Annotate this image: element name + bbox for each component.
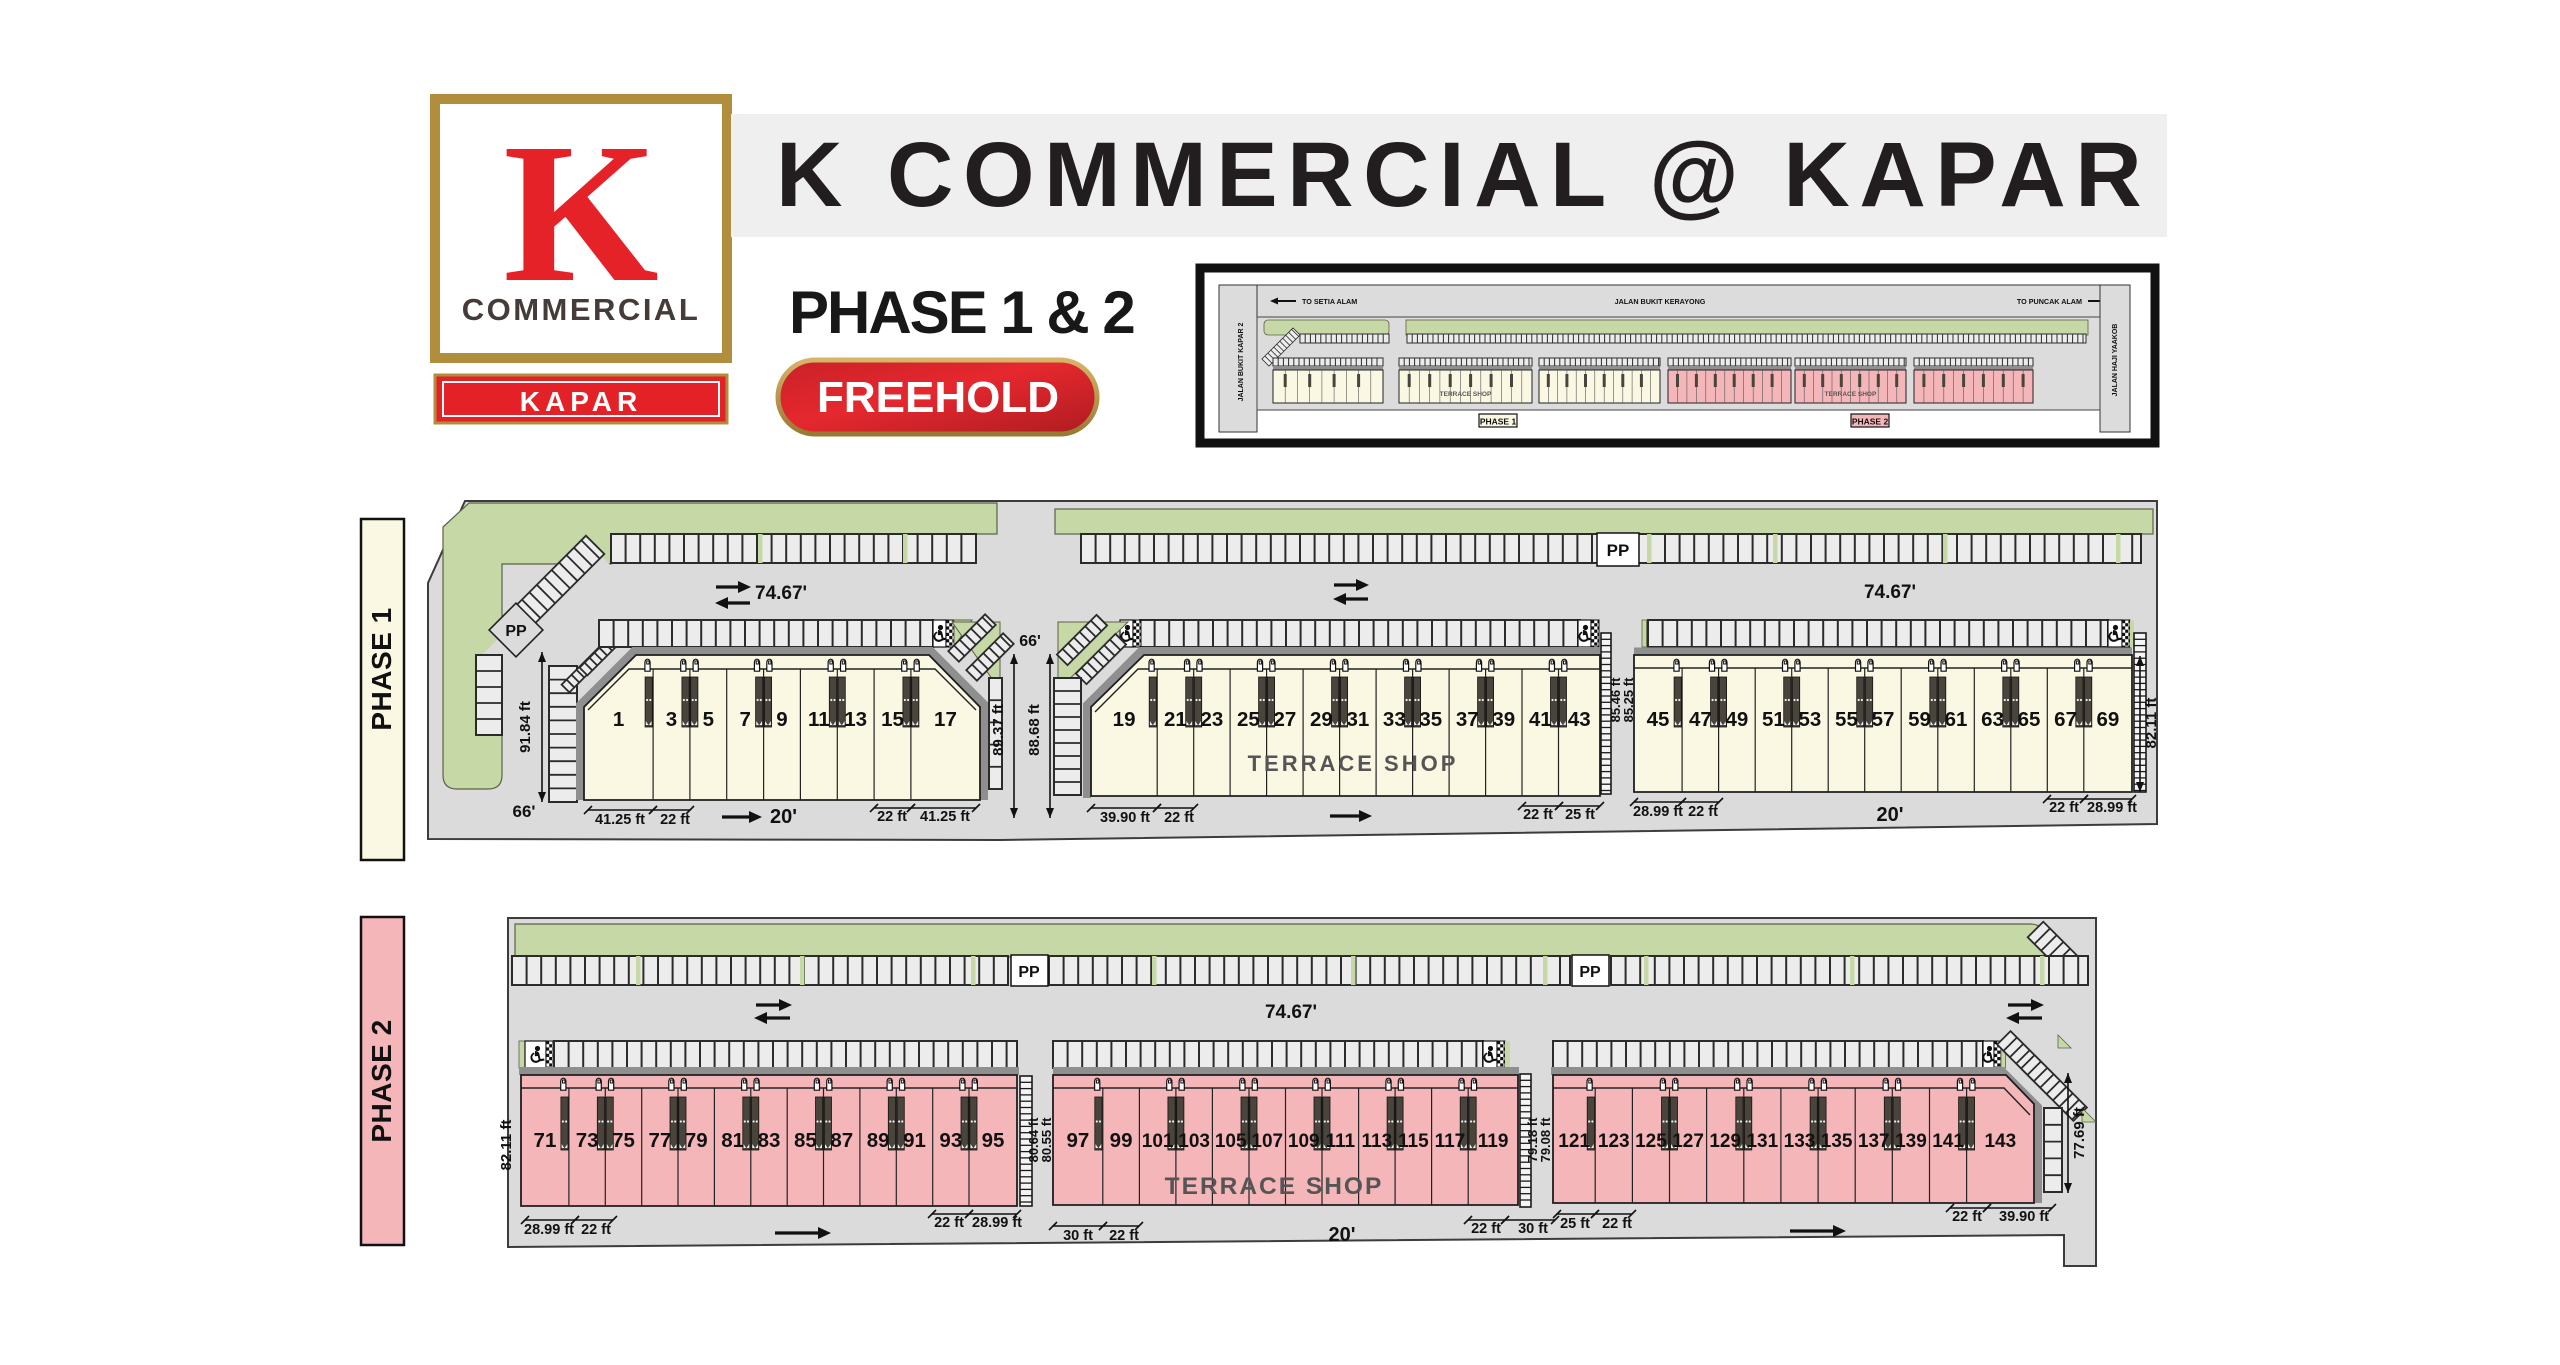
svg-text:82.11 ft: 82.11 ft (2143, 698, 2160, 749)
svg-text:22 ft: 22 ft (1471, 1221, 1501, 1237)
svg-text:39.90 ft: 39.90 ft (1100, 810, 1150, 826)
svg-text:59: 59 (1908, 708, 1931, 731)
svg-text:89: 89 (867, 1129, 890, 1152)
svg-text:TERRACE SHOP: TERRACE SHOP (1165, 1173, 1384, 1200)
svg-text:55: 55 (1835, 708, 1858, 731)
svg-text:15: 15 (881, 708, 904, 731)
svg-text:137: 137 (1858, 1131, 1890, 1152)
svg-text:22 ft: 22 ft (1523, 807, 1553, 823)
svg-text:95: 95 (982, 1129, 1005, 1152)
svg-text:87: 87 (830, 1129, 853, 1152)
svg-text:7: 7 (739, 708, 750, 731)
svg-text:79: 79 (685, 1129, 708, 1152)
svg-text:22 ft: 22 ft (660, 812, 690, 828)
svg-text:TO PUNCAK ALAM: TO PUNCAK ALAM (2017, 297, 2082, 306)
svg-text:13: 13 (844, 708, 867, 731)
svg-text:123: 123 (1598, 1131, 1630, 1152)
svg-text:82.11 ft: 82.11 ft (498, 1120, 515, 1171)
svg-text:43: 43 (1568, 708, 1591, 731)
svg-text:TERRACE SHOP: TERRACE SHOP (1248, 751, 1459, 776)
svg-text:121: 121 (1558, 1131, 1590, 1152)
svg-text:111: 111 (1325, 1131, 1355, 1152)
svg-text:PHASE 1: PHASE 1 (1480, 417, 1517, 427)
svg-text:53: 53 (1799, 708, 1822, 731)
svg-text:135: 135 (1821, 1131, 1853, 1152)
svg-text:1: 1 (613, 708, 624, 731)
svg-text:143: 143 (1984, 1131, 2016, 1152)
svg-text:139: 139 (1895, 1131, 1927, 1152)
svg-text:74.67': 74.67' (1265, 1002, 1317, 1023)
svg-text:FREEHOLD: FREEHOLD (817, 373, 1059, 422)
svg-text:25 ft: 25 ft (1565, 807, 1595, 823)
svg-text:67: 67 (2054, 708, 2077, 731)
svg-text:91.84 ft: 91.84 ft (517, 701, 534, 753)
svg-text:39.90 ft: 39.90 ft (1999, 1209, 2049, 1225)
svg-text:22 ft: 22 ft (581, 1222, 611, 1238)
svg-text:COMMERCIAL: COMMERCIAL (462, 292, 701, 327)
svg-text:133: 133 (1784, 1131, 1816, 1152)
svg-text:69: 69 (2096, 708, 2119, 731)
svg-text:41.25 ft: 41.25 ft (920, 809, 970, 825)
svg-text:88.68 ft: 88.68 ft (1026, 704, 1043, 756)
svg-text:28.99 ft: 28.99 ft (524, 1222, 574, 1238)
svg-text:63: 63 (1981, 708, 2004, 731)
svg-text:51: 51 (1762, 708, 1785, 731)
svg-text:80.55 ft: 80.55 ft (1039, 1117, 1054, 1162)
svg-text:PP: PP (1018, 964, 1040, 981)
svg-text:22 ft: 22 ft (1164, 810, 1194, 826)
svg-text:66': 66' (1019, 633, 1041, 650)
svg-text:22 ft: 22 ft (1688, 804, 1718, 820)
svg-text:17: 17 (934, 708, 957, 731)
svg-text:109: 109 (1288, 1131, 1320, 1152)
svg-text:JALAN HAJI YAAKOB: JALAN HAJI YAAKOB (2112, 324, 2119, 397)
svg-text:20': 20' (770, 806, 797, 828)
svg-text:125: 125 (1635, 1131, 1667, 1152)
svg-text:61: 61 (1945, 708, 1968, 731)
svg-text:103: 103 (1178, 1131, 1210, 1152)
svg-text:39: 39 (1492, 708, 1515, 731)
svg-text:K: K (503, 103, 659, 324)
svg-text:31: 31 (1346, 708, 1369, 731)
svg-text:101: 101 (1142, 1131, 1174, 1152)
svg-text:75: 75 (612, 1129, 635, 1152)
svg-text:22 ft: 22 ft (1602, 1216, 1632, 1232)
svg-text:22 ft: 22 ft (934, 1215, 964, 1231)
svg-text:K COMMERCIAL @ KAPAR: K COMMERCIAL @ KAPAR (776, 124, 2151, 226)
svg-text:33: 33 (1383, 708, 1406, 731)
svg-text:85: 85 (794, 1129, 817, 1152)
svg-text:TERRACE SHOP: TERRACE SHOP (1825, 391, 1877, 398)
svg-text:105: 105 (1215, 1131, 1247, 1152)
svg-text:3: 3 (666, 708, 677, 731)
svg-text:74.67': 74.67' (1864, 582, 1916, 603)
svg-text:5: 5 (703, 708, 714, 731)
svg-text:99: 99 (1110, 1129, 1133, 1152)
svg-text:41.25 ft: 41.25 ft (595, 812, 645, 828)
svg-text:41: 41 (1529, 708, 1552, 731)
svg-text:19: 19 (1113, 708, 1136, 731)
svg-text:127: 127 (1672, 1131, 1704, 1152)
svg-text:93: 93 (939, 1129, 962, 1152)
svg-text:25: 25 (1237, 708, 1260, 731)
svg-text:30 ft: 30 ft (1063, 1228, 1093, 1244)
svg-text:77: 77 (648, 1129, 671, 1152)
svg-text:131: 131 (1746, 1131, 1778, 1152)
svg-text:21: 21 (1164, 708, 1187, 731)
svg-text:PHASE 2: PHASE 2 (366, 1019, 397, 1142)
svg-text:20': 20' (1328, 1224, 1355, 1246)
svg-text:113: 113 (1362, 1131, 1393, 1152)
svg-text:89.37 ft: 89.37 ft (990, 704, 1007, 756)
svg-text:66': 66' (513, 802, 536, 821)
svg-text:28.99 ft: 28.99 ft (2087, 800, 2137, 816)
svg-text:65: 65 (2018, 708, 2041, 731)
svg-text:23: 23 (1200, 708, 1223, 731)
svg-text:141: 141 (1932, 1131, 1964, 1152)
svg-text:PHASE 1: PHASE 1 (366, 607, 397, 730)
svg-text:129: 129 (1709, 1131, 1741, 1152)
svg-text:85.25 ft: 85.25 ft (1621, 677, 1636, 722)
svg-text:49: 49 (1725, 708, 1748, 731)
svg-text:KAPAR: KAPAR (520, 386, 642, 417)
svg-text:47: 47 (1689, 708, 1712, 731)
svg-text:22 ft: 22 ft (1952, 1209, 1982, 1225)
svg-text:73: 73 (576, 1129, 599, 1152)
svg-text:81: 81 (721, 1129, 744, 1152)
svg-text:30 ft: 30 ft (1518, 1221, 1548, 1237)
svg-text:JALAN BUKIT KAPAR 2: JALAN BUKIT KAPAR 2 (1238, 322, 1245, 401)
svg-text:77.69 ft: 77.69 ft (2071, 1107, 2088, 1159)
svg-text:PP: PP (1607, 541, 1630, 560)
svg-text:37: 37 (1456, 708, 1479, 731)
svg-text:45: 45 (1647, 708, 1670, 731)
svg-text:22 ft: 22 ft (1109, 1228, 1139, 1244)
svg-text:107: 107 (1251, 1131, 1283, 1152)
svg-text:91: 91 (903, 1129, 926, 1152)
svg-text:22 ft: 22 ft (2049, 800, 2079, 816)
svg-text:TO SETIA ALAM: TO SETIA ALAM (1302, 297, 1357, 306)
svg-text:PP: PP (505, 623, 527, 640)
svg-text:71: 71 (534, 1129, 557, 1152)
svg-text:PP: PP (1579, 964, 1601, 981)
svg-text:57: 57 (1872, 708, 1895, 731)
svg-text:35: 35 (1419, 708, 1442, 731)
svg-text:25 ft: 25 ft (1560, 1216, 1590, 1232)
svg-text:PHASE 1 & 2: PHASE 1 & 2 (789, 279, 1134, 346)
svg-text:22 ft: 22 ft (877, 809, 907, 825)
svg-text:TERRACE SHOP: TERRACE SHOP (1440, 391, 1492, 398)
svg-text:117: 117 (1435, 1131, 1466, 1152)
svg-text:28.99 ft: 28.99 ft (972, 1215, 1022, 1231)
svg-text:9: 9 (776, 708, 787, 731)
svg-text:28.99 ft: 28.99 ft (1633, 804, 1683, 820)
svg-text:20': 20' (1876, 804, 1903, 826)
svg-text:PHASE 2: PHASE 2 (1852, 417, 1889, 427)
svg-text:11: 11 (808, 708, 830, 731)
svg-text:79.08 ft: 79.08 ft (1538, 1117, 1553, 1162)
svg-text:74.67': 74.67' (755, 583, 807, 604)
svg-text:27: 27 (1273, 708, 1296, 731)
svg-text:JALAN BUKIT KERAYONG: JALAN BUKIT KERAYONG (1615, 297, 1706, 306)
svg-text:115: 115 (1398, 1131, 1429, 1152)
svg-text:97: 97 (1067, 1129, 1090, 1152)
svg-text:119: 119 (1478, 1131, 1509, 1152)
svg-text:83: 83 (758, 1129, 781, 1152)
svg-text:29: 29 (1310, 708, 1333, 731)
